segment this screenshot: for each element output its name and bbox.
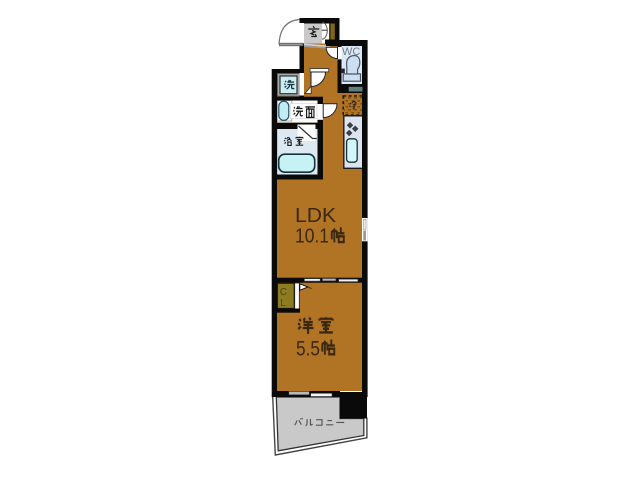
svg-text:5.5: 5.5 (296, 338, 320, 361)
svg-text:10.1: 10.1 (295, 225, 329, 248)
svg-text:L: L (280, 298, 286, 309)
svg-text:C: C (280, 287, 287, 298)
svg-text:WC: WC (342, 46, 360, 58)
